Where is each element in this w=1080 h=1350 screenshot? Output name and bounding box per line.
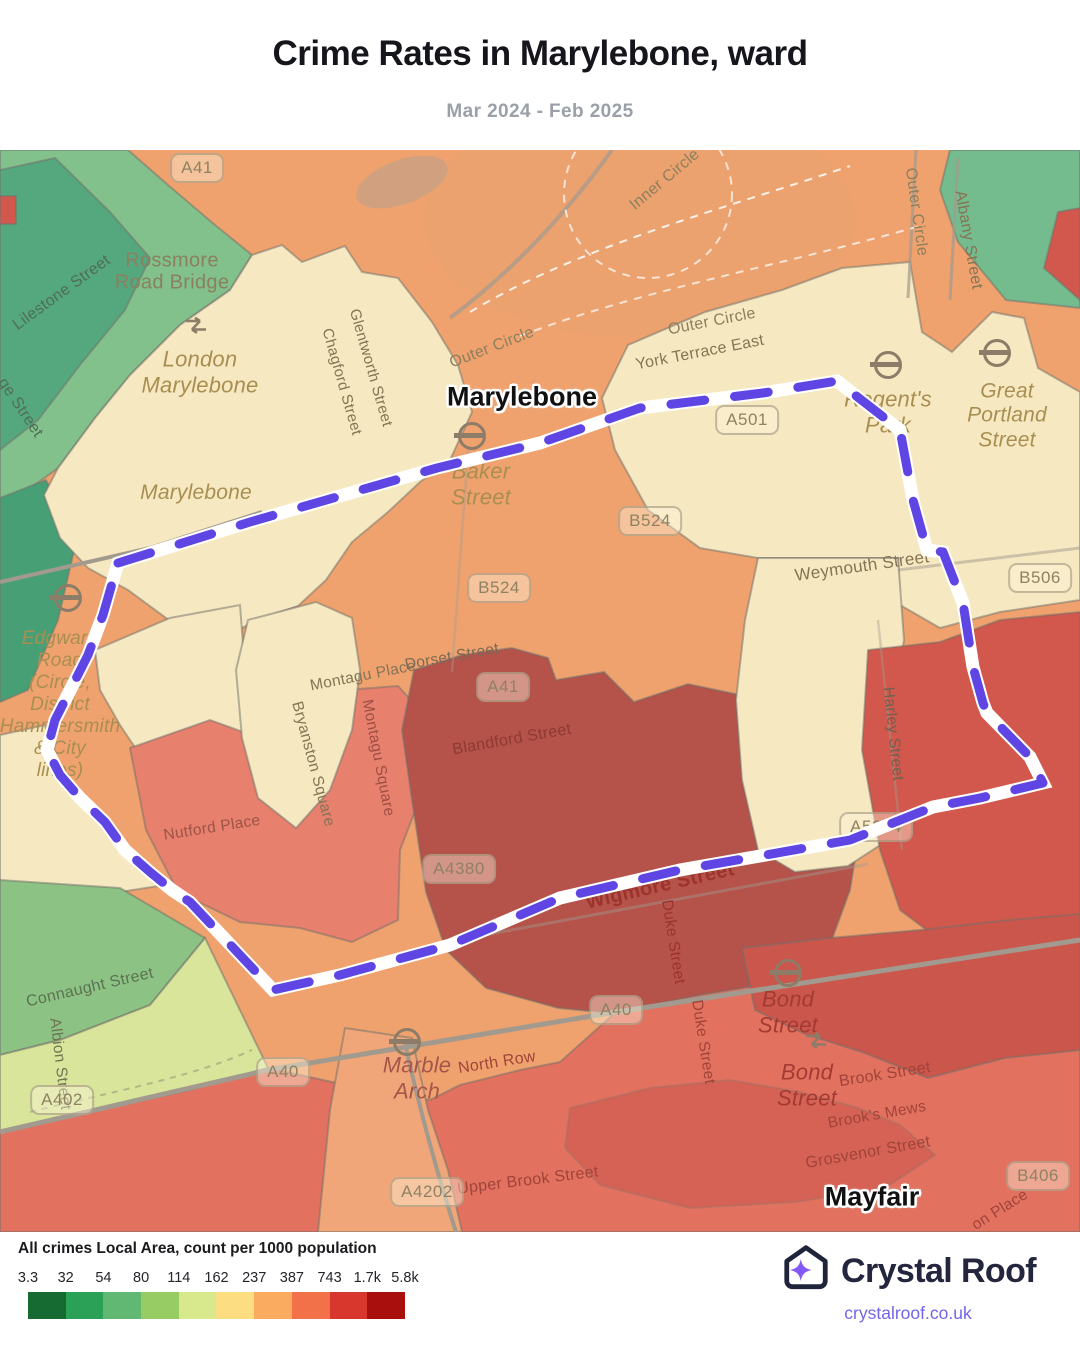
legend: All crimes Local Area, count per 1000 po…	[0, 1232, 560, 1350]
legend-swatch-7	[254, 1292, 292, 1319]
crystal-roof-logo-icon	[780, 1243, 832, 1300]
date-range-subtitle: Mar 2024 - Feb 2025	[0, 101, 1080, 123]
page: Crime Rates in Marylebone, ward Mar 2024…	[0, 0, 1080, 1350]
legend-stop-labels: 3.33254801141622373877431.7k5.8k	[0, 1270, 560, 1290]
legend-title: All crimes Local Area, count per 1000 po…	[18, 1240, 377, 1258]
legend-stop-162: 162	[204, 1270, 228, 1286]
legend-swatch-5	[179, 1292, 217, 1319]
legend-stop-743: 743	[317, 1270, 341, 1286]
legend-stop-237: 237	[242, 1270, 266, 1286]
legend-stop-1.7k: 1.7k	[354, 1270, 381, 1286]
legend-swatch-3	[103, 1292, 141, 1319]
legend-swatch-4	[141, 1292, 179, 1319]
brand-footer: Crystal Roof crystalroof.co.uk	[748, 1243, 1068, 1324]
crystalroof-link[interactable]: crystalroof.co.uk	[844, 1303, 971, 1324]
legend-swatch-9	[330, 1292, 368, 1319]
legend-stop-80: 80	[133, 1270, 149, 1286]
map-regions-layer	[0, 150, 1080, 1232]
legend-stop-114: 114	[167, 1270, 190, 1286]
legend-color-bar	[28, 1292, 405, 1319]
legend-swatch-2	[66, 1292, 104, 1319]
legend-swatch-1	[28, 1292, 66, 1319]
brand-name: Crystal Roof	[841, 1252, 1036, 1291]
legend-stop-54: 54	[95, 1270, 111, 1286]
legend-stop-387: 387	[280, 1270, 304, 1286]
legend-stop-5.8k: 5.8k	[391, 1270, 418, 1286]
legend-swatch-6	[216, 1292, 254, 1319]
legend-stop-3.3: 3.3	[18, 1270, 38, 1286]
legend-swatch-10	[367, 1292, 405, 1319]
legend-swatch-8	[292, 1292, 330, 1319]
page-title: Crime Rates in Marylebone, ward	[0, 34, 1080, 74]
crime-map: Lilestone Streetge StreetRossmore Road B…	[0, 150, 1080, 1232]
legend-stop-32: 32	[58, 1270, 74, 1286]
